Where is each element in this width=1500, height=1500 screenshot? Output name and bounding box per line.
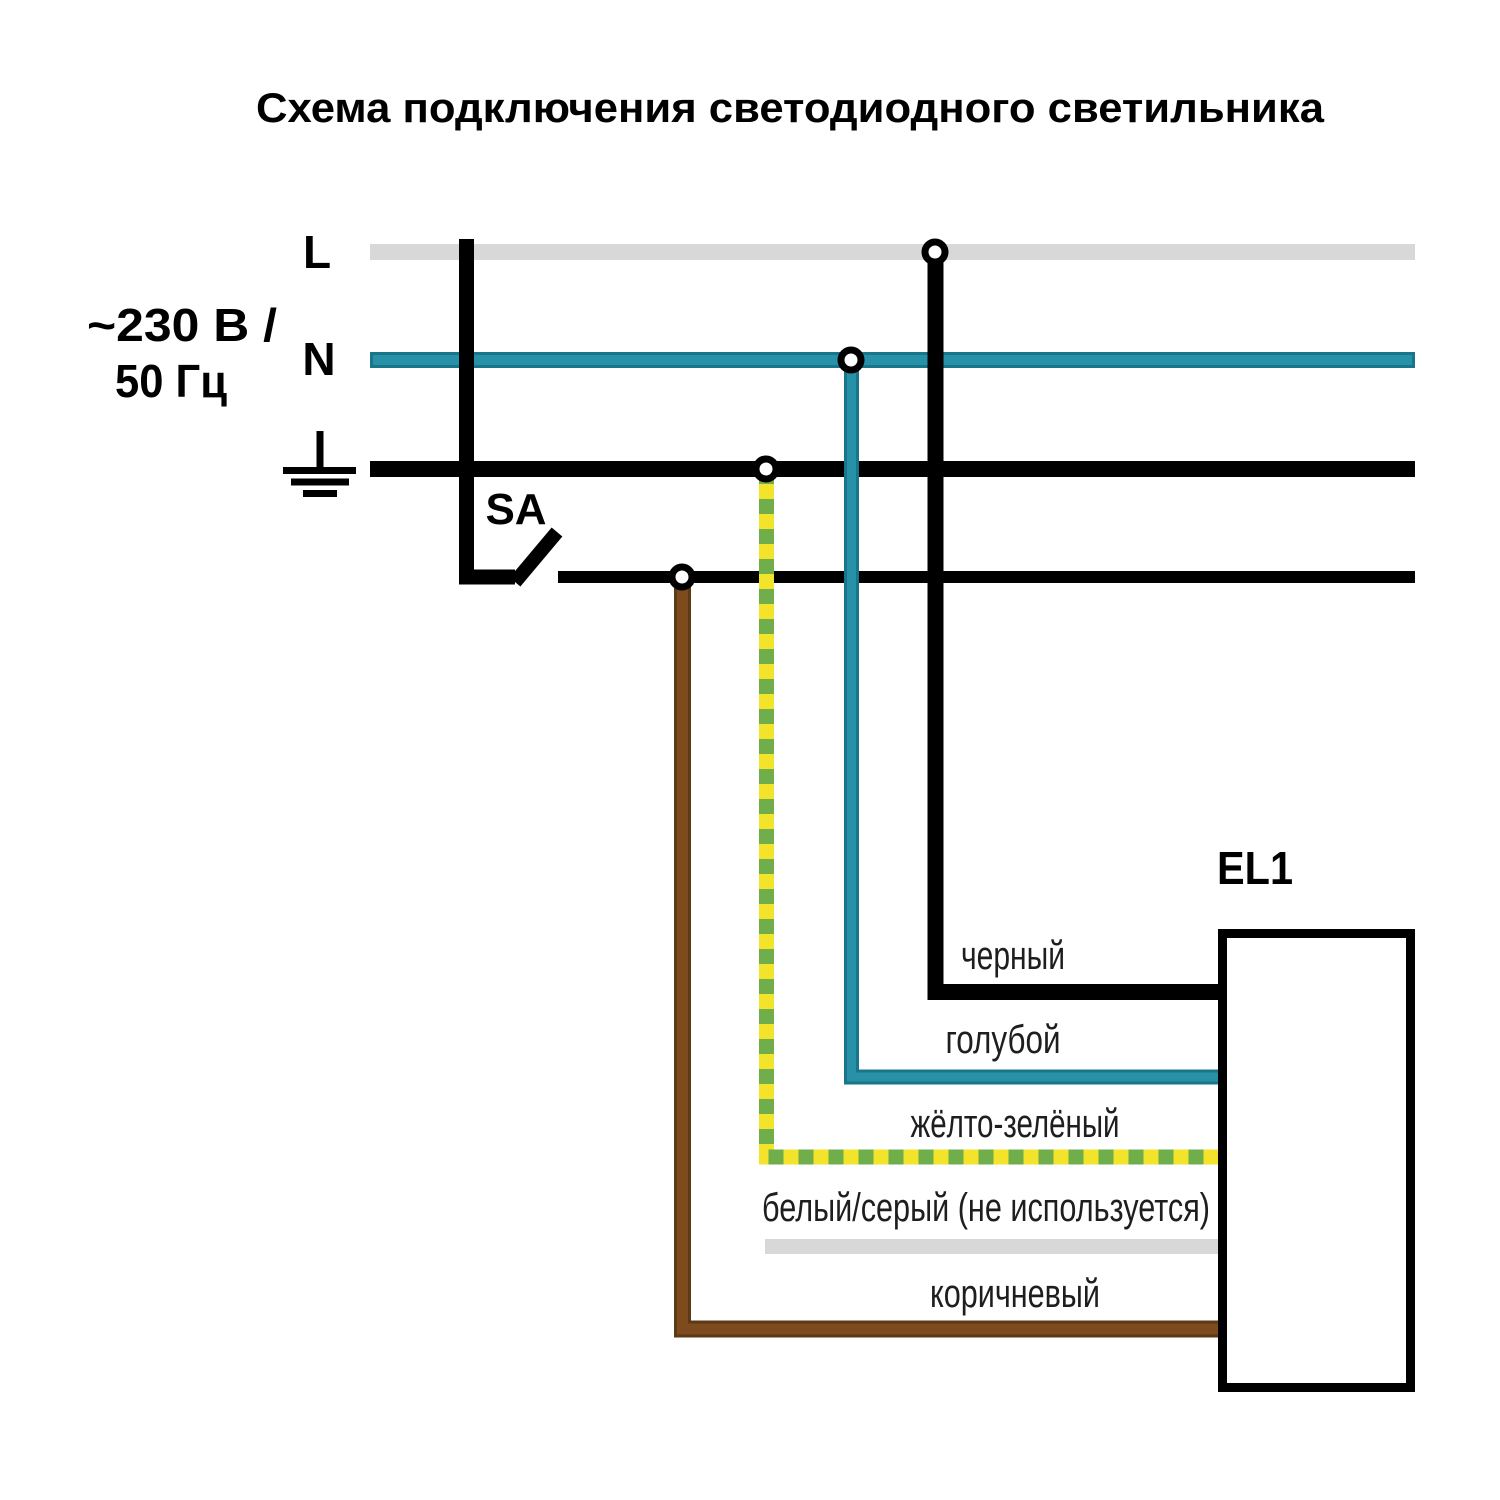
- luminaire-el1-label: EL1: [1217, 842, 1293, 894]
- junction-dot-pe: [756, 459, 776, 479]
- blue-wire-label: голубой: [946, 1018, 1061, 1062]
- neutral-n-label: N: [302, 333, 335, 385]
- pe-bus-wire: [370, 461, 1415, 477]
- ground-symbol: [283, 431, 356, 494]
- junction-dot-n: [841, 350, 861, 370]
- line-l-label: L: [303, 226, 331, 278]
- luminaire-box: [1223, 934, 1411, 1388]
- yellow-green-wire-label: жёлто-зелёный: [911, 1102, 1120, 1146]
- brown-wire-label: коричневый: [930, 1272, 1100, 1316]
- switch-sa-label: SA: [485, 485, 546, 534]
- voltage-label-line1: ~230 В /: [87, 299, 277, 351]
- l-bus-wire: [370, 244, 1415, 260]
- white-gray-wire-label: белый/серый (не используется): [762, 1186, 1210, 1230]
- n-bus-wire: [372, 354, 1414, 367]
- wiring-diagram: Схема подключения светодиодного светильн…: [0, 0, 1500, 1500]
- junction-dot-l: [925, 242, 945, 262]
- black-wire-label: черный: [961, 934, 1065, 978]
- white-gray-wire: [765, 1239, 1220, 1254]
- junction-dot-switched: [672, 567, 692, 587]
- switch-blade: [515, 532, 557, 582]
- voltage-label-line2: 50 Гц: [115, 355, 227, 407]
- diagram-title: Схема подключения светодиодного светильн…: [256, 84, 1325, 131]
